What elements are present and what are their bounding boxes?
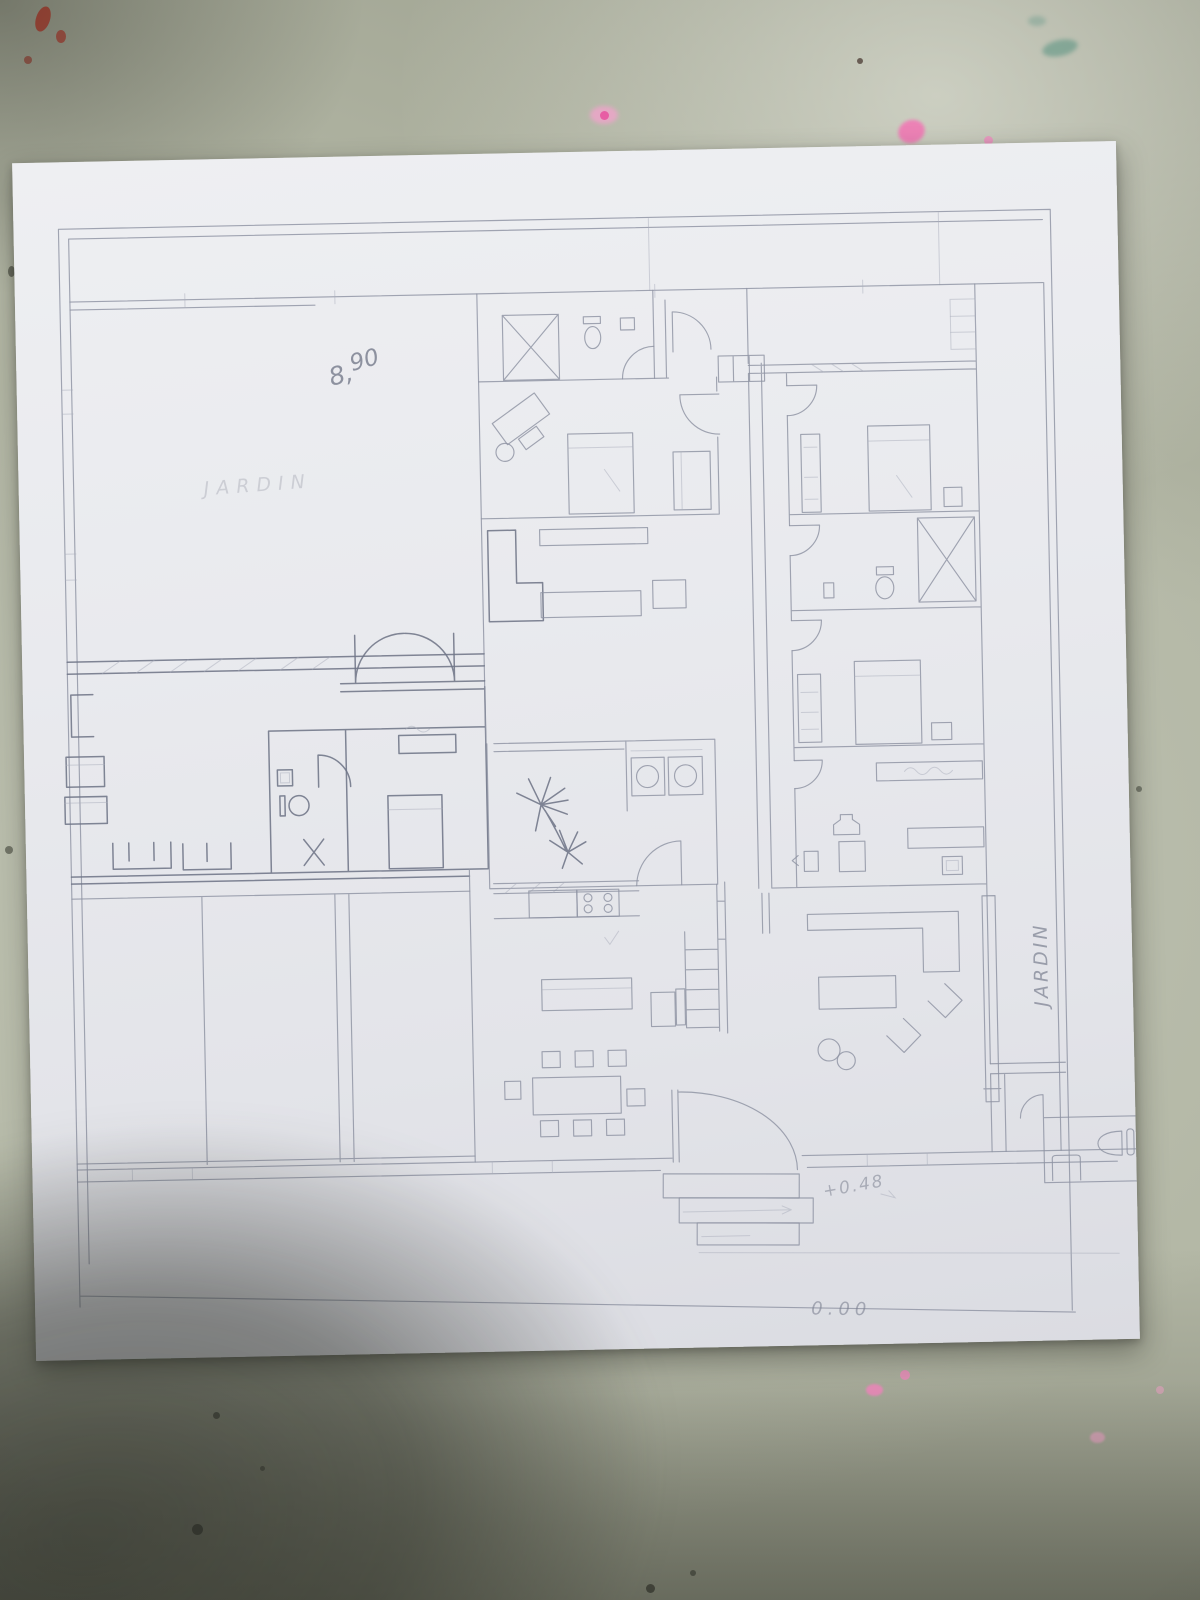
bedroom-top	[479, 377, 722, 519]
window-wall	[980, 896, 1001, 1102]
bathroom-top	[477, 290, 669, 382]
central-patio-and-laundry	[487, 739, 718, 889]
landing-step	[651, 992, 676, 1026]
teal-paint-smudge	[1041, 36, 1080, 59]
closet-symbol	[801, 434, 822, 512]
desk-and-chair	[492, 393, 558, 457]
shelf-symbol	[718, 355, 765, 382]
dryer-symbol	[668, 756, 703, 795]
red-paint-speck	[24, 56, 32, 64]
coffee-table-symbol	[541, 591, 641, 618]
walkway	[990, 1062, 1067, 1151]
chair-symbol	[606, 1119, 624, 1135]
pink-paint-dot	[900, 1370, 910, 1380]
dark-speck	[1136, 786, 1142, 792]
chair-symbol	[608, 1050, 626, 1066]
l-sofa-symbol	[807, 911, 959, 974]
pink-paint-smudge	[1090, 1432, 1105, 1443]
pink-paint-dot	[1156, 1386, 1164, 1394]
service-block-left	[62, 632, 489, 884]
shower-symbol	[502, 314, 559, 380]
nightstand-symbol	[944, 487, 962, 506]
toilet-bowl	[584, 326, 600, 348]
small-bathroom	[277, 755, 352, 866]
desk-symbol	[908, 827, 984, 849]
chair-symbol	[573, 1120, 591, 1136]
dressing-room	[790, 761, 984, 878]
kitchen-dining	[469, 866, 646, 1162]
pink-paint-dot	[600, 111, 609, 120]
nightstand-symbol	[932, 722, 952, 739]
bed-symbol	[568, 433, 635, 514]
stove-symbol	[577, 889, 620, 917]
table-symbol	[839, 841, 866, 872]
toilet-bowl	[289, 795, 309, 815]
drawing-paper-sheet: 8,90 JARDIN JARDIN +0.48 0.00	[12, 141, 1140, 1361]
teal-paint-smudge	[1028, 16, 1046, 26]
family-room-corridor	[482, 527, 689, 744]
shower-symbol	[917, 517, 976, 602]
door-swing	[672, 311, 711, 352]
bed-symbol	[868, 425, 932, 511]
garden-label: JARDIN	[1030, 922, 1054, 1007]
stairs	[649, 882, 728, 1034]
ground-level-mark: 0.00	[811, 1298, 871, 1320]
vase-symbol	[833, 814, 859, 835]
sink-symbol	[1127, 1129, 1135, 1155]
sink-symbol	[277, 770, 292, 786]
newel-post	[676, 989, 686, 1025]
chair-symbol	[887, 1019, 921, 1053]
dark-speck	[646, 1584, 655, 1593]
door-swing	[636, 841, 682, 886]
toilet-bowl	[1098, 1131, 1122, 1155]
stool-symbol	[496, 443, 514, 461]
bedroom-1	[798, 299, 979, 513]
chair-symbol	[505, 1081, 521, 1099]
side-table-symbol	[818, 1039, 840, 1061]
garden-strip-and-wc	[695, 1061, 1139, 1314]
pink-paint-blob	[895, 116, 928, 147]
cabinet-symbol	[66, 756, 105, 787]
door-swing	[622, 346, 655, 379]
stool-symbol	[942, 856, 962, 874]
service-bedroom	[386, 725, 458, 868]
living-room	[762, 889, 1001, 1107]
coffee-table-symbol	[819, 976, 897, 1010]
shower-tray	[1052, 1155, 1080, 1181]
bed-symbol	[854, 660, 922, 744]
plan-frame	[58, 209, 1075, 1332]
chair-symbol	[627, 1089, 645, 1106]
door-swings	[787, 385, 825, 789]
photo-of-floor-plan: 8,90 JARDIN JARDIN +0.48 0.00	[0, 0, 1200, 1600]
red-paint-speck	[32, 4, 53, 33]
toilet-tank	[876, 567, 893, 575]
armchair-symbol	[673, 451, 711, 510]
bottom-shadow	[0, 1380, 1200, 1600]
dark-speck	[213, 1412, 220, 1419]
chair-symbol	[542, 1051, 560, 1067]
dining-table-symbol	[533, 1076, 622, 1115]
right-bedrooms-column	[747, 284, 991, 1068]
dark-speck	[192, 1524, 203, 1535]
bed-symbol	[388, 795, 443, 869]
plant-sketch	[517, 777, 587, 869]
sink-symbol	[620, 318, 634, 330]
toilet-tank	[583, 316, 600, 323]
side-table-symbol	[837, 1051, 855, 1069]
door-swing	[680, 394, 720, 435]
bench-seats	[113, 841, 232, 871]
sink-symbol	[824, 583, 834, 598]
floor-plan-drawing	[12, 141, 1140, 1361]
chair-symbol	[928, 984, 962, 1018]
dark-speck	[857, 58, 863, 64]
chair-symbol	[575, 1051, 593, 1067]
pink-paint-dot	[866, 1384, 883, 1396]
duct-symbol	[950, 299, 976, 349]
dark-speck	[690, 1570, 696, 1576]
kitchen-island-symbol	[542, 978, 633, 1011]
l-sofa-symbol	[488, 530, 544, 622]
armchair-symbol	[653, 580, 687, 609]
bedroom-2	[797, 659, 952, 745]
wardrobe-rod	[876, 761, 982, 781]
desk-symbol	[399, 734, 456, 753]
double-door-swing	[340, 632, 485, 692]
counter-symbol	[529, 890, 578, 918]
shower-symbol	[304, 839, 325, 865]
closet-symbol	[798, 674, 822, 742]
counter-symbol	[71, 695, 94, 737]
wc-walls-and-door	[1020, 1093, 1138, 1183]
cabinet-symbol	[65, 796, 108, 824]
chair-symbol	[540, 1120, 558, 1136]
bathroom-right	[822, 517, 976, 604]
bottom-walls-and-bays	[72, 878, 1137, 1182]
entry-door-swing	[672, 1088, 798, 1172]
toilet-bowl	[876, 577, 894, 599]
dark-speck	[5, 846, 13, 854]
hall-top	[672, 288, 765, 383]
dark-speck	[260, 1466, 265, 1471]
toilet-tank	[280, 796, 285, 816]
console-symbol	[540, 528, 648, 546]
red-paint-speck	[56, 30, 66, 43]
